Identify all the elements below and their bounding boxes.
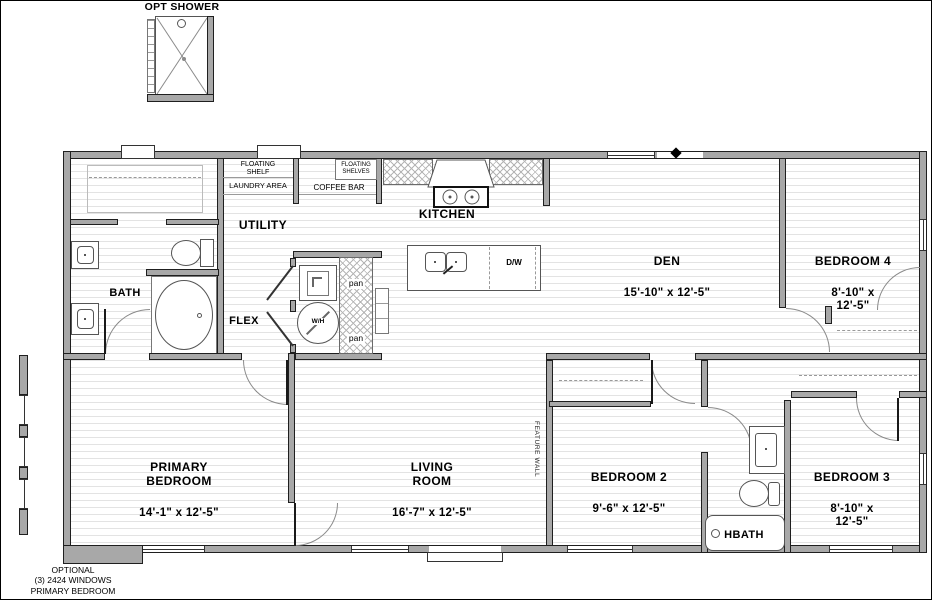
room-label-bedroom3: BEDROOM 3 8'-10" x 12'-5" [813,451,892,549]
dishwasher-label: D/W [506,259,522,268]
shelf-line [376,318,388,319]
range-and-hood-icon [427,159,495,209]
room-label-primary: PRIMARY BEDROOM 14'-1" x 12'-5" [139,441,219,540]
room-dims: 8'-10" x 12'-5" [814,287,892,314]
optional-window-3 [19,479,28,509]
closet-rod-dashed [89,177,201,178]
hbath-toilet-tank [768,482,780,506]
hbath-toilet-bowl [739,480,769,507]
room-label-bedroom2: BEDROOM 2 9'-6" x 12'-5" [591,451,667,535]
wall-closet-bottom-left [70,219,118,225]
window-closet-top [121,145,155,159]
hbath-sink [755,433,777,467]
optional-wall-segment [19,509,28,535]
door-leaf-primary [286,360,288,405]
feature-wall [546,360,553,546]
laundry-area-label: LAUNDRY AREA [229,182,287,190]
optional-windows-caption: OPTIONAL (3) 2424 WINDOWS PRIMARY BEDROO… [4,565,142,596]
wall-mid-left-b [149,353,242,360]
coffee-bar-label: COFFEE BAR [313,184,364,193]
bath-tub [155,280,213,350]
room-dims: 8'-10" x 12'-5" [813,503,892,530]
window-utility-top [257,145,301,159]
bed2-closet-rod-dashed [559,380,643,381]
door-leaf-bedroom3 [897,398,899,441]
shower-wall-bottom [147,94,214,102]
optional-wall-segment [19,425,28,437]
floating-shelf-edge [222,177,293,178]
window-bedroom4-right [920,219,926,251]
water-heater-label: W/H [311,318,326,325]
pantry-label-top: pan [347,279,365,289]
room-label-hbath: HBATH [724,529,764,542]
door-leaf-bedroom2 [651,360,653,404]
wall-closet-bottom-right [166,219,219,225]
shower-head-icon [177,19,186,28]
wall-den-bed4-divider [779,158,786,308]
laundry-counter-edge [222,194,293,195]
feature-wall-label: FEATURE WALL [533,421,540,477]
entry-closet [87,165,203,213]
optional-window-wall-highlight [63,545,143,564]
shelf-line [376,303,388,304]
window-bedroom3-right [920,453,926,485]
tub-drain-dot [197,313,202,318]
window-den [607,152,655,158]
sink-drain-dot [765,448,767,450]
floating-shelves-label: FLOATING SHELVES [341,162,371,175]
room-label-living: LIVING ROOM 16'-7" x 12'-5" [392,441,472,540]
wall-bath-utility-divider [217,158,224,354]
sink-drain-dot [455,261,457,263]
room-label-kitchen: KITCHEN [419,207,475,221]
door-leaf-bath [104,309,106,354]
window-living-bottom [351,546,409,552]
wall-flex-closet-bottom [295,353,382,360]
pantry-label-bottom: pan [347,334,365,344]
wall-laundry-coffeebar [293,158,299,204]
room-name: BEDROOM 2 [591,470,667,484]
optional-wall-segment [19,355,28,395]
room-dims: 9'-6" x 12'-5" [591,503,667,517]
kitchen-counter-hatch-left [383,159,433,185]
room-dims: 16'-7" x 12'-5" [392,507,472,521]
window-primary-bottom [141,546,205,552]
sink-drain-dot [84,254,86,256]
shower-glass-icon [156,17,208,95]
wall-bed3-entry-left [791,391,857,398]
room-name: LIVING ROOM [392,460,472,488]
room-dims: 14'-1" x 12'-5" [139,507,219,521]
room-name: BEDROOM 3 [813,470,892,484]
window-bedroom2-bottom [567,546,633,552]
pantry-shelf-unit [375,288,389,334]
wall-tub-enclosure [146,269,219,276]
tub-faucet-icon [711,529,720,538]
dishwasher-dash-left [489,247,490,289]
room-label-utility: UTILITY [239,218,287,232]
bath-toilet-bowl [171,240,201,266]
wall-bed2-closet [549,401,651,407]
bath-toilet-tank [200,239,214,267]
opt-shower-label: OPT SHOWER [145,2,220,14]
wall-bed2-hbath-upper [701,360,708,407]
wall-exterior-top [63,151,927,159]
floorplan-canvas: OPT SHOWER [0,0,932,600]
wall-bed3-entry-right [899,391,927,398]
wall-kitchen-den-divider [543,158,550,206]
wall-primary-living-divider [288,353,295,503]
shower-tile-strip [147,19,155,93]
optional-window-2 [19,437,28,467]
appliance-mark [312,277,322,287]
wall-exterior-right [919,151,927,553]
shower-wall-right [207,16,214,96]
optional-wall-segment [19,467,28,479]
room-name: DEN [624,254,710,268]
opt-shower-pan [155,16,209,96]
room-label-flex: FLEX [229,315,259,328]
floating-shelf-label: FLOATING SHELF [241,161,275,177]
wall-hbath-bed3 [784,400,791,553]
coffeebar-counter-edge [299,194,376,195]
optional-window-1 [19,395,28,425]
dishwasher-dash-right [535,247,536,289]
wall-mid-right-a [546,353,650,360]
sink-drain-dot [84,318,86,320]
wall-exterior-left [63,151,71,553]
sink-drain-dot [434,261,436,263]
room-label-den: DEN 15'-10" x 12'-5" [624,235,710,319]
flex-closet-doors-icon [259,256,299,356]
room-name: BEDROOM 4 [814,254,892,268]
bed3-closet-rod-dashed [799,375,917,376]
room-name: PRIMARY BEDROOM [139,460,219,488]
wall-mid-right-b [695,353,927,360]
room-label-bedroom4: BEDROOM 4 8'-10" x 12'-5" [814,235,892,333]
door-leaf-living [294,503,296,546]
kitchen-counter-hatch-right [489,159,543,185]
room-dims: 15'-10" x 12'-5" [624,287,710,301]
wall-mid-left-a [63,353,105,360]
rear-door-step [427,552,503,562]
room-label-bath: BATH [109,287,140,300]
